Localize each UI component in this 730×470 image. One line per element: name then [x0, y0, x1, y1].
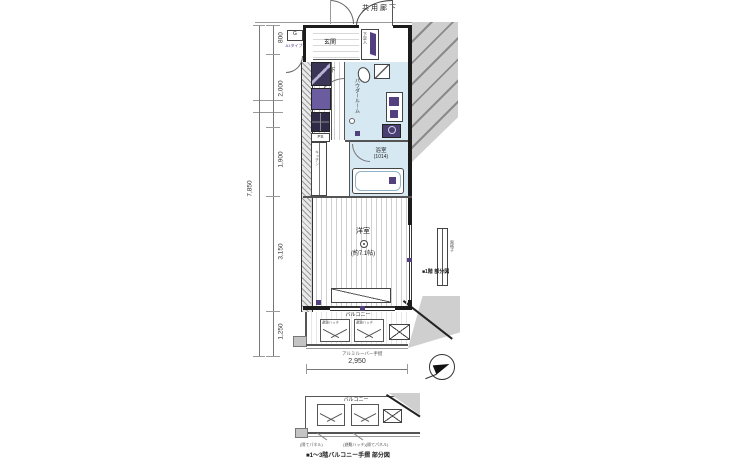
escape-hatch-2-label: 避難ハッチ: [356, 320, 373, 325]
switch-mark-1: [316, 300, 321, 305]
detail-rail-1: [305, 432, 420, 434]
dim-line-left: [273, 25, 274, 356]
wall-top-left: [303, 25, 359, 28]
exterior-gray-bottom-right: [408, 296, 460, 348]
bathtub-faucet-mark: [389, 177, 396, 184]
window-detail-label: 面格子: [449, 240, 455, 252]
gas-meter-label: G: [287, 32, 303, 38]
neighbor-door-panel: [330, 0, 331, 24]
detail-drain-box: [295, 428, 308, 438]
dim-total-tick-bottom: [253, 356, 265, 357]
toilet-tank: [374, 64, 390, 79]
dim-total-left: 7,850: [247, 167, 254, 211]
washbasin-cabinet-mark: [390, 110, 398, 118]
entrance-label: 玄関: [318, 40, 342, 47]
wall-bottom-right: [395, 306, 412, 310]
detail-note-left: (隔てパネル): [300, 442, 323, 448]
ac-unit-box: [389, 324, 410, 340]
dim-bottom-width: 2,950: [336, 358, 378, 365]
kitchen-partition: [331, 62, 332, 140]
detail-balcony-label: バルコニー: [334, 398, 378, 404]
drain-box: [293, 336, 307, 347]
kitchen-label: キッチン: [314, 150, 320, 166]
neighbor-line-2: [253, 112, 283, 113]
window-detail-frame: [437, 228, 448, 286]
shoe-box-door-mark: [370, 32, 376, 56]
dim-bottom-tick-l: [306, 364, 307, 374]
ps-label: PS: [311, 134, 330, 139]
window-detail-caption: ■1階 部分図: [422, 268, 470, 275]
dim-left-1900: 1,900: [278, 141, 285, 179]
dim-line-total: [259, 25, 260, 356]
washbasin-bowl-mark: [389, 97, 399, 106]
refrigerator-space: [311, 112, 330, 132]
handrail-line-1: [306, 344, 408, 346]
powder-room-label: パウダールーム: [354, 78, 361, 113]
dim-left-800: 800: [278, 19, 285, 57]
detail-ac-box: [383, 409, 402, 423]
wall-right-upper: [408, 25, 412, 225]
washing-machine-drum: [388, 126, 396, 134]
entrance-door-panel: [392, 0, 393, 26]
balcony-detail-caption: ■1〜3階バルコニー手摺 部分図: [306, 450, 436, 459]
powder-wall: [344, 62, 345, 140]
unit-type-label: A1タイプ: [282, 43, 306, 49]
entrance-door-arc: [356, 0, 392, 26]
handrail-label: アルミルーバー手摺: [342, 351, 412, 357]
detail-note-right: (避難ハッチ)(隔てパネル): [343, 442, 388, 448]
dim-bottom-tick-r: [407, 364, 408, 374]
ceiling-light-dot: [363, 243, 365, 245]
dim-line-bottom: [306, 369, 408, 370]
stove-unit: [311, 62, 331, 86]
room-name-label: 洋室: [348, 228, 378, 236]
handrail-line-2: [306, 348, 408, 349]
bath-wall-left: [349, 142, 350, 196]
balcony-window-mark: [360, 306, 365, 311]
wall-bottom-left: [303, 306, 330, 310]
sink-unit: [311, 88, 331, 110]
neighbor-door-arc: [330, 0, 354, 24]
shoe-box-label: 下足入: [362, 32, 368, 44]
downlight-1: [349, 118, 355, 124]
dim-left-1250: 1,250: [278, 313, 285, 351]
dim-left-3150: 3,150: [278, 233, 285, 271]
dim-tick-4: [266, 196, 280, 197]
dim-tick-6: [266, 356, 280, 357]
escape-hatch-1-label: 避難ハッチ: [322, 320, 339, 325]
dim-left-2000: 2,000: [278, 70, 285, 108]
dim-tick-3: [266, 127, 280, 128]
bath-size-label: (1014): [364, 155, 398, 161]
floor-plan-canvas: 共用廊下 G A1タイプ 玄関 下足入 廊下 PS キッチン パウダールー: [0, 0, 730, 470]
room-size-label: (約7.1帖): [345, 251, 381, 258]
entrance-step-line: [313, 59, 360, 60]
switch-mark-2: [355, 131, 360, 136]
exterior-gray-top-right: [412, 22, 458, 162]
dim-total-tick-top: [253, 25, 265, 26]
balcony-label: バルコニー: [336, 313, 380, 319]
closet: [331, 288, 391, 303]
